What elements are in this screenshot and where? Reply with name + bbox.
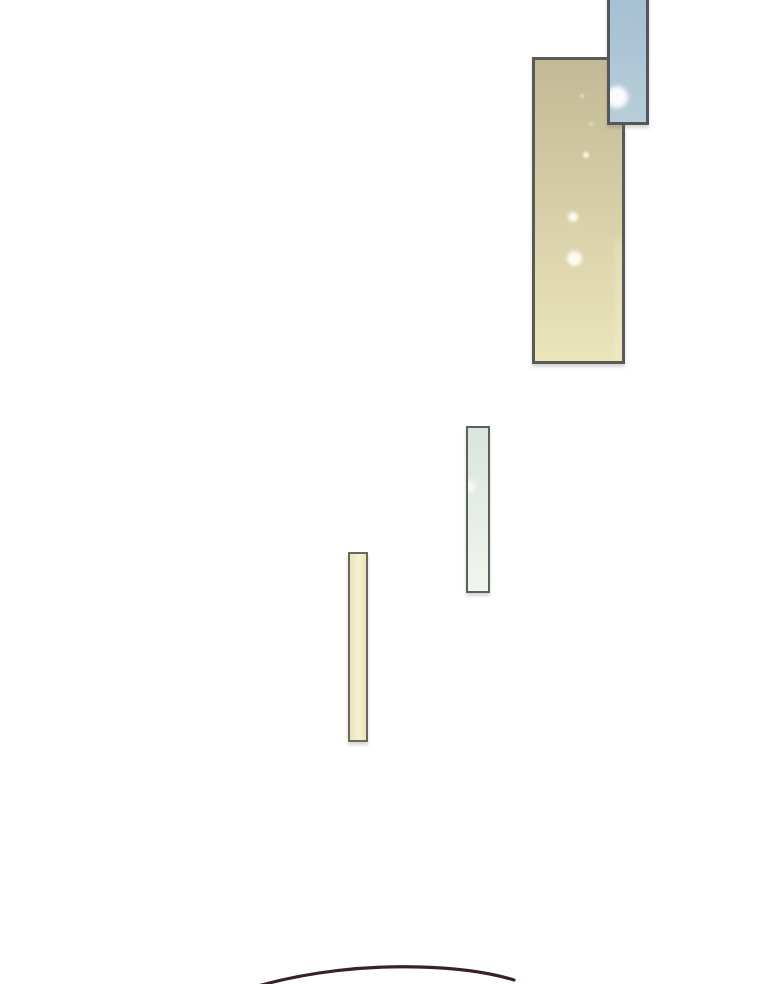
light-streak [616,240,621,360]
light-glow [607,86,628,108]
blue-window-pane [607,0,649,125]
cream-pane [348,552,368,742]
sparkle-dot [583,152,589,158]
hair-silhouette-arc [0,0,760,984]
glass-pane [466,426,490,593]
sparkle-dot [580,94,584,98]
sparkle-dot [568,212,578,222]
hair-line [251,967,514,984]
light-glow [466,481,475,492]
sparkle-dot [589,122,593,126]
comic-panel-background [0,0,760,984]
sparkle-dot [567,251,582,266]
